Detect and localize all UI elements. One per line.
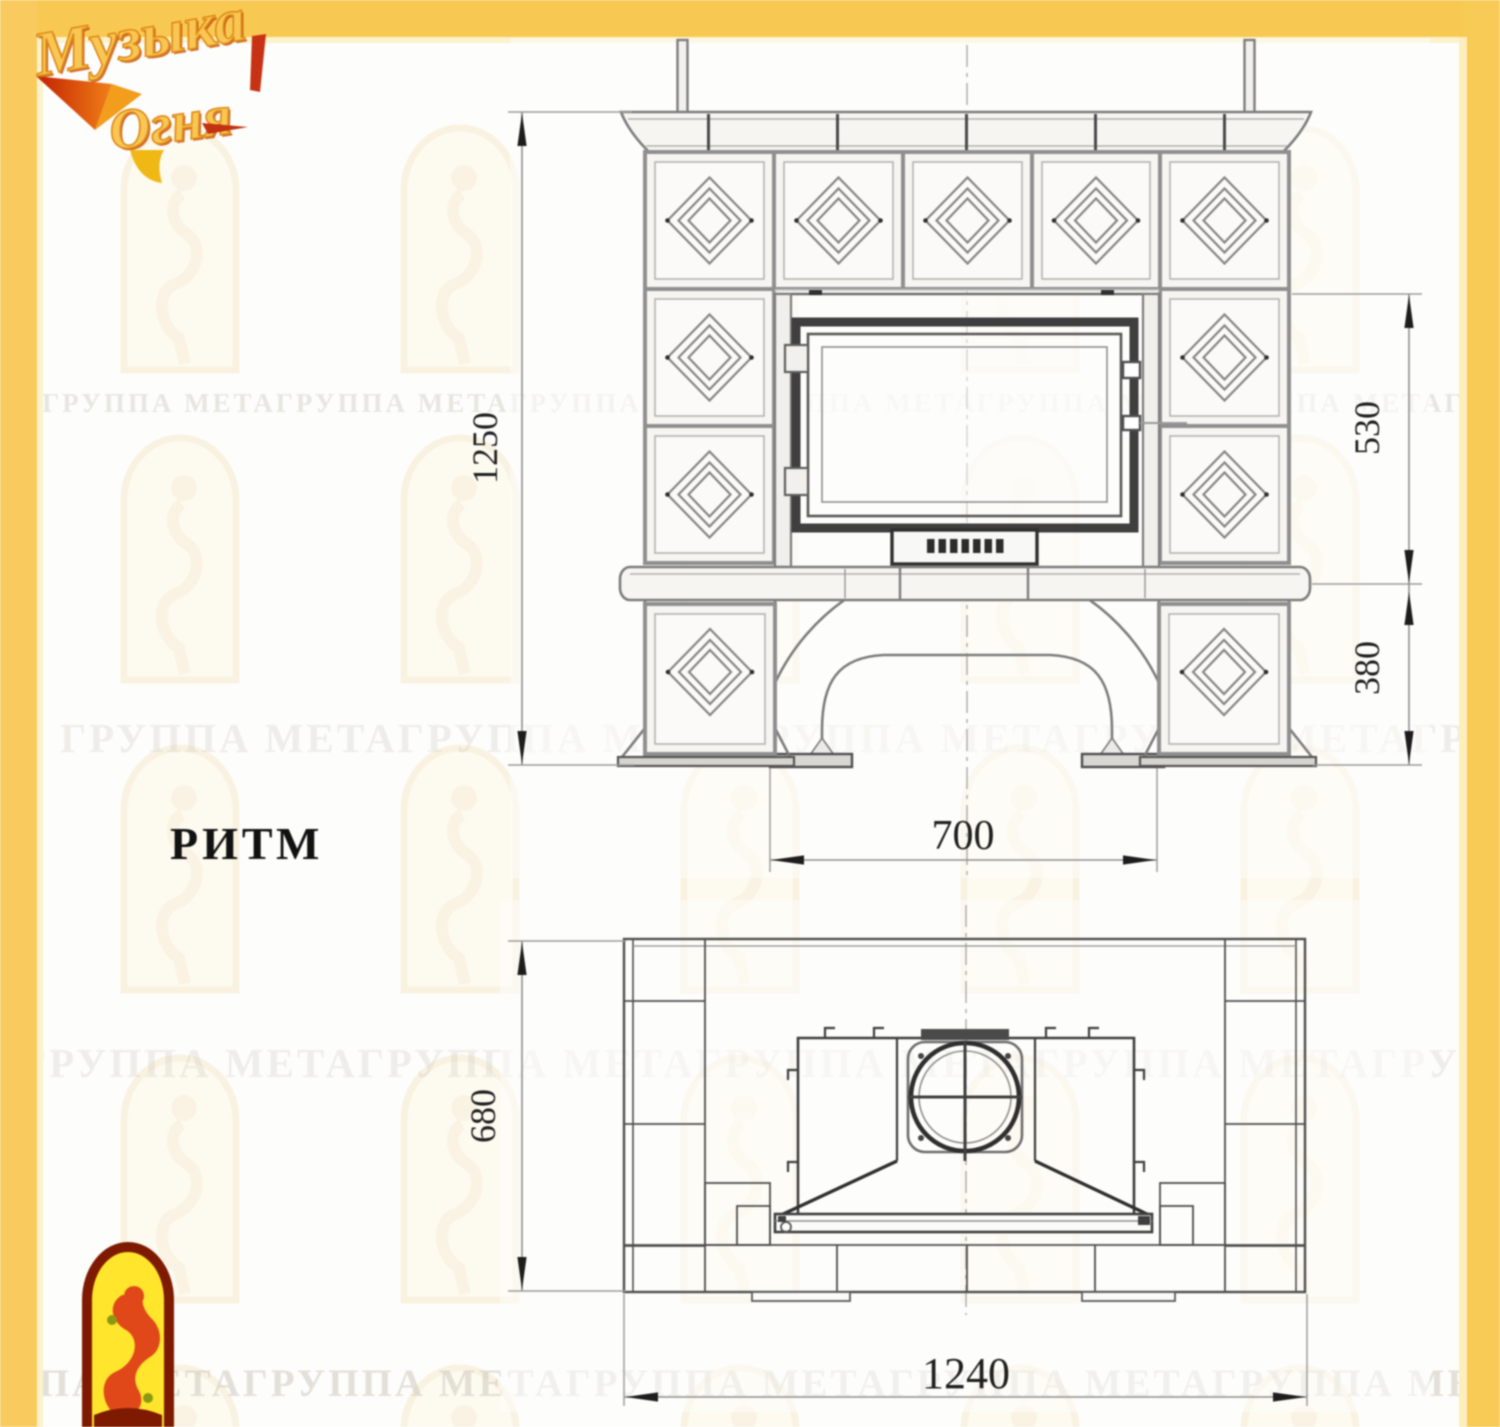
svg-text:1240: 1240 xyxy=(922,1349,1010,1398)
svg-text:700: 700 xyxy=(932,813,995,859)
svg-text:1250: 1250 xyxy=(465,412,505,484)
svg-text:530: 530 xyxy=(1347,401,1387,455)
svg-text:380: 380 xyxy=(1347,641,1387,695)
svg-text:680: 680 xyxy=(463,1089,503,1143)
svg-text:РИТМ: РИТМ xyxy=(170,818,323,869)
